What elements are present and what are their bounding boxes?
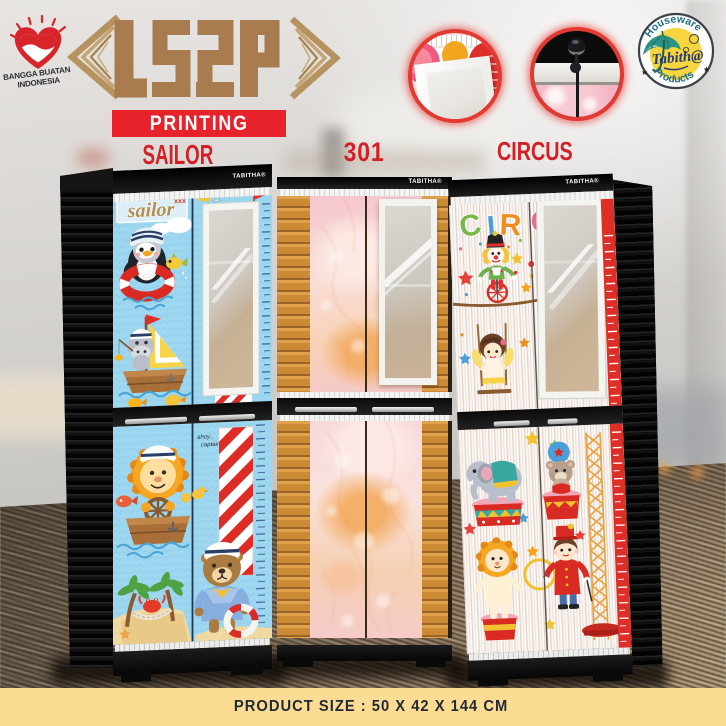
svg-text:★: ★: [703, 65, 710, 74]
svg-text:★: ★: [641, 68, 648, 77]
svg-text:sailor: sailor: [127, 198, 175, 222]
svg-text:xxx: xxx: [174, 198, 186, 206]
svg-text:captain: captain: [201, 442, 221, 449]
svg-text:ahoy...: ahoy...: [197, 434, 215, 441]
